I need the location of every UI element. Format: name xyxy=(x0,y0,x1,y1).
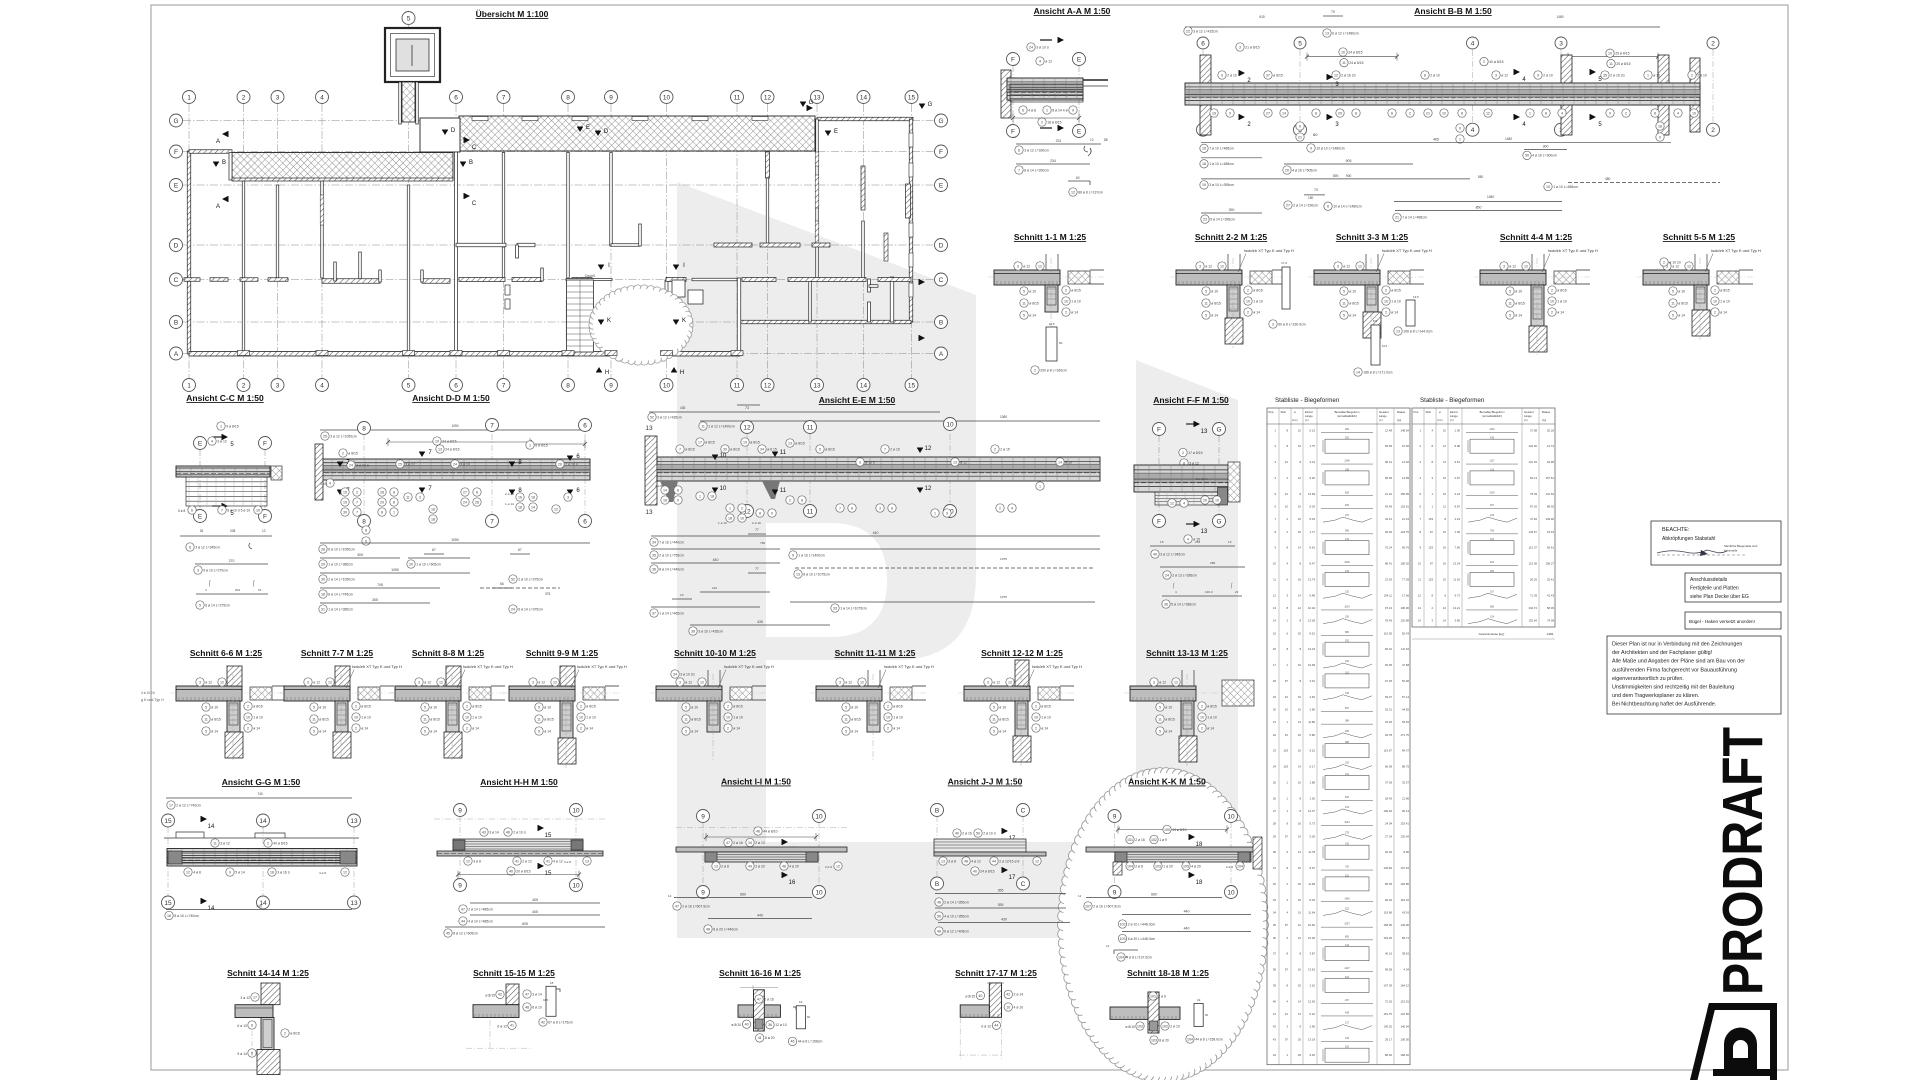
svg-text:34: 34 xyxy=(1273,910,1277,914)
svg-text:67: 67 xyxy=(432,548,436,552)
svg-text:Schnitt 12-12 M 1:25: Schnitt 12-12 M 1:25 xyxy=(981,648,1063,658)
svg-text:4 ø 8: 4 ø 8 xyxy=(193,870,201,874)
svg-text:10.99: 10.99 xyxy=(1308,663,1315,667)
svg-text:9: 9 xyxy=(701,813,705,820)
svg-text:137.43: 137.43 xyxy=(1400,866,1409,870)
svg-text:262: 262 xyxy=(1345,1046,1350,1049)
svg-text:12: 12 xyxy=(220,680,224,684)
svg-text:15: 15 xyxy=(258,588,262,592)
svg-text:97: 97 xyxy=(1285,1037,1289,1041)
svg-text:12: 12 xyxy=(1220,264,1224,268)
svg-text:157.61: 157.61 xyxy=(1545,476,1554,480)
svg-text:231: 231 xyxy=(1056,139,1062,143)
svg-text:1 ø 14 L=1075cm: 1 ø 14 L=1075cm xyxy=(840,606,867,610)
svg-text:14: 14 xyxy=(860,382,868,389)
svg-text:6.48: 6.48 xyxy=(1310,593,1316,597)
svg-text:90.41: 90.41 xyxy=(1385,460,1392,464)
svg-text:104.74: 104.74 xyxy=(1528,606,1537,610)
svg-text:8.47: 8.47 xyxy=(1310,562,1316,566)
svg-text:97: 97 xyxy=(1430,562,1434,566)
svg-text:2 ø 12 L=740cm: 2 ø 12 L=740cm xyxy=(176,803,201,807)
svg-text:47.58: 47.58 xyxy=(1402,663,1409,667)
svg-text:34: 34 xyxy=(748,841,752,845)
svg-text:16: 16 xyxy=(1298,517,1302,521)
svg-text:31: 31 xyxy=(1273,866,1277,870)
svg-text:8.5: 8.5 xyxy=(1373,319,1378,323)
svg-text:14: 14 xyxy=(1282,111,1286,115)
svg-text:88.92: 88.92 xyxy=(1547,504,1554,508)
svg-text:110: 110 xyxy=(712,586,717,590)
svg-text:37: 37 xyxy=(652,611,656,615)
svg-text:13: 13 xyxy=(788,441,792,445)
svg-text:8 ø 10 L=1075cm: 8 ø 10 L=1075cm xyxy=(803,572,830,576)
svg-text:2: 2 xyxy=(1691,73,1693,77)
svg-text:78.39: 78.39 xyxy=(1530,492,1537,496)
svg-text:ø 14: ø 14 xyxy=(1349,313,1356,317)
svg-text:7 ø 14 L=485cm: 7 ø 14 L=485cm xyxy=(1402,216,1427,220)
svg-text:11: 11 xyxy=(807,508,814,515)
svg-text:G: G xyxy=(1216,518,1221,525)
svg-text:11: 11 xyxy=(537,717,541,721)
svg-text:1: 1 xyxy=(1459,137,1461,141)
svg-text:15: 15 xyxy=(908,94,916,101)
svg-text:2 ø 8: 2 ø 8 xyxy=(1135,864,1143,868)
svg-text:2 ø 10: 2 ø 10 xyxy=(1170,1024,1180,1028)
svg-text:683: 683 xyxy=(1345,491,1350,494)
svg-text:BEACHTE:: BEACHTE: xyxy=(1662,527,1690,533)
svg-text:28.45: 28.45 xyxy=(1385,796,1392,800)
svg-text:13.69: 13.69 xyxy=(1308,492,1315,496)
svg-text:12.56: 12.56 xyxy=(1308,999,1315,1003)
svg-text:1 ø 10: 1 ø 10 xyxy=(893,715,903,719)
svg-text:ø 8/15: ø 8/15 xyxy=(348,451,358,455)
svg-text:10: 10 xyxy=(720,486,727,492)
svg-text:3: 3 xyxy=(1495,73,1497,77)
svg-text:F: F xyxy=(1157,518,1161,525)
svg-text:6: 6 xyxy=(1018,148,1020,152)
svg-text:20: 20 xyxy=(1298,983,1302,987)
svg-text:12: 12 xyxy=(764,94,772,101)
svg-text:ø 12: ø 12 xyxy=(685,680,692,684)
svg-text:ø 12: ø 12 xyxy=(1343,264,1350,268)
svg-text:110.59: 110.59 xyxy=(1384,631,1393,635)
svg-text:262: 262 xyxy=(1345,437,1350,440)
svg-text:3 ø 14: 3 ø 14 xyxy=(489,830,499,834)
svg-text:ø 8/10: ø 8/10 xyxy=(1125,1025,1135,1029)
svg-text:Ansicht F-F M 1:50: Ansicht F-F M 1:50 xyxy=(1153,395,1229,405)
svg-text:52: 52 xyxy=(511,577,515,581)
svg-text:ø 8/15: ø 8/15 xyxy=(1165,717,1175,721)
svg-text:153: 153 xyxy=(1428,546,1433,550)
svg-text:C: C xyxy=(472,201,477,207)
svg-text:G: G xyxy=(1216,426,1221,433)
svg-text:4: 4 xyxy=(320,94,324,101)
svg-text:139.92: 139.92 xyxy=(1545,517,1554,521)
svg-text:12: 12 xyxy=(1071,190,1075,194)
svg-text:10: 10 xyxy=(1298,663,1302,667)
svg-text:G: G xyxy=(938,118,943,125)
svg-text:2: 2 xyxy=(284,1031,286,1035)
svg-text:8 ø 10 L=1050cm: 8 ø 10 L=1050cm xyxy=(328,547,355,551)
svg-text:11.99: 11.99 xyxy=(1308,882,1315,886)
svg-text:2: 2 xyxy=(1714,288,1716,292)
svg-text:ø 8 15: ø 8 15 xyxy=(767,447,777,451)
svg-text:5.80: 5.80 xyxy=(1310,733,1316,737)
svg-text:3 ø 10 L=395cm: 3 ø 10 L=395cm xyxy=(1209,183,1234,187)
svg-text:Bei Nichtbeachtung haftet der: Bei Nichtbeachtung haftet der Ausführend… xyxy=(1612,702,1716,708)
svg-text:2: 2 xyxy=(1385,310,1387,314)
svg-text:23: 23 xyxy=(1203,217,1207,221)
svg-text:1080: 1080 xyxy=(1000,415,1007,419)
svg-text:12: 12 xyxy=(1358,264,1362,268)
svg-text:2: 2 xyxy=(1201,726,1203,730)
svg-text:4 ø 20: 4 ø 20 xyxy=(1191,864,1201,868)
svg-text:88.75: 88.75 xyxy=(1402,765,1409,769)
svg-text:32: 32 xyxy=(1273,882,1277,886)
svg-text:48: 48 xyxy=(964,859,968,863)
svg-text:3 ø 8: 3 ø 8 xyxy=(564,860,571,864)
svg-text:14: 14 xyxy=(1298,999,1302,1003)
svg-text:234: 234 xyxy=(1050,159,1056,163)
svg-text:23.30: 23.30 xyxy=(1385,577,1392,581)
svg-text:104: 104 xyxy=(1237,864,1243,868)
svg-text:1: 1 xyxy=(220,424,222,428)
svg-text:11: 11 xyxy=(1022,301,1026,305)
svg-text:10: 10 xyxy=(1034,715,1038,719)
svg-text:163.85: 163.85 xyxy=(1400,882,1409,886)
svg-text:7: 7 xyxy=(490,518,494,525)
svg-text:ø 8/15: ø 8/15 xyxy=(1041,704,1051,708)
svg-text:Länge: Länge xyxy=(1524,414,1532,418)
svg-text:43.91: 43.91 xyxy=(1402,910,1409,914)
svg-text:1 ø 10 L=485cm: 1 ø 10 L=485cm xyxy=(1553,185,1578,189)
svg-text:44 ø 8 L=158cm: 44 ø 8 L=158cm xyxy=(798,1040,823,1044)
svg-text:8 ø 12 L=605cm: 8 ø 12 L=605cm xyxy=(453,931,478,935)
svg-text:1427: 1427 xyxy=(1344,967,1350,970)
svg-text:131.63: 131.63 xyxy=(1545,492,1554,496)
svg-text:102: 102 xyxy=(1162,1024,1168,1028)
svg-text:9: 9 xyxy=(609,94,613,101)
svg-text:34: 34 xyxy=(673,672,677,676)
svg-text:1 ø 10 L=485cm: 1 ø 10 L=485cm xyxy=(1209,162,1234,166)
svg-text:E: E xyxy=(1077,128,1082,135)
svg-text:10: 10 xyxy=(726,715,730,719)
svg-text:8 ø 14 L=440cm: 8 ø 14 L=440cm xyxy=(659,567,684,571)
svg-text:14: 14 xyxy=(208,906,215,912)
svg-text:2 ø 9: 2 ø 9 xyxy=(1158,994,1166,998)
svg-text:102.61: 102.61 xyxy=(1400,504,1409,508)
svg-text:67: 67 xyxy=(518,548,522,552)
svg-text:ø 8/15: ø 8/15 xyxy=(1071,288,1081,292)
svg-text:48: 48 xyxy=(937,900,941,904)
svg-text:17: 17 xyxy=(698,440,702,444)
svg-text:10: 10 xyxy=(1692,111,1696,115)
svg-text:2 ø 10: 2 ø 10 xyxy=(1430,73,1440,77)
svg-text:24 ø 8/15: 24 ø 8/15 xyxy=(445,447,459,451)
svg-text:10: 10 xyxy=(1215,498,1219,502)
svg-text:12: 12 xyxy=(186,870,190,874)
svg-text:5: 5 xyxy=(845,705,847,709)
svg-text:Schnitt 7-7 M 1:25: Schnitt 7-7 M 1:25 xyxy=(301,648,374,658)
svg-text:12: 12 xyxy=(439,680,443,684)
svg-text:[kg]: [kg] xyxy=(1542,419,1546,422)
svg-text:6 ø 14 L=275cm: 6 ø 14 L=275cm xyxy=(205,603,230,607)
svg-text:E: E xyxy=(834,129,838,135)
svg-text:12: 12 xyxy=(764,382,772,389)
svg-text:9: 9 xyxy=(1659,135,1661,139)
svg-text:2: 2 xyxy=(466,704,468,708)
svg-text:Anschlussdetails: Anschlussdetails xyxy=(1690,577,1728,583)
svg-text:Länge: Länge xyxy=(1379,414,1387,418)
svg-text:40: 40 xyxy=(978,994,982,998)
svg-text:208: 208 xyxy=(230,529,236,533)
svg-text:8 ø 10 ü 5 ø 10: 8 ø 10 ü 5 ø 10 xyxy=(227,508,250,512)
svg-text:3 ø 14: 3 ø 14 xyxy=(532,992,542,996)
svg-text:Isokörb XT Typ K und Typ H: Isokörb XT Typ K und Typ H xyxy=(1711,248,1761,253)
svg-text:5: 5 xyxy=(685,729,687,733)
svg-text:107.39: 107.39 xyxy=(1383,983,1392,987)
svg-text:3 ø 10 2ü: 3 ø 10 2ü xyxy=(680,672,694,676)
svg-text:97: 97 xyxy=(1285,968,1289,972)
svg-text:36: 36 xyxy=(768,1023,772,1027)
svg-text:Isokörb XT Typ K und Typ H: Isokörb XT Typ K und Typ H xyxy=(724,664,774,669)
svg-text:33: 33 xyxy=(833,606,837,610)
svg-text:ø 10: ø 10 xyxy=(1029,289,1036,293)
svg-text:136.3: 136.3 xyxy=(1205,590,1213,594)
svg-text:ø 8/15: ø 8/15 xyxy=(361,704,371,708)
svg-text:13.19: 13.19 xyxy=(1308,1037,1315,1041)
svg-text:25.41: 25.41 xyxy=(1547,577,1554,581)
svg-text:2 ø 8: 2 ø 8 xyxy=(721,864,729,868)
svg-text:15.15: 15.15 xyxy=(1547,530,1554,534)
svg-text:5: 5 xyxy=(1159,729,1161,733)
svg-text:14: 14 xyxy=(1298,1012,1302,1016)
svg-text:ø 8/15: ø 8/15 xyxy=(211,717,221,721)
svg-text:18: 18 xyxy=(1202,162,1206,166)
svg-text:123.75: 123.75 xyxy=(1400,530,1409,534)
svg-text:355: 355 xyxy=(998,903,1004,907)
svg-text:9: 9 xyxy=(1113,889,1117,896)
svg-text:5: 5 xyxy=(993,729,995,733)
svg-text:A: A xyxy=(216,204,220,210)
svg-text:8: 8 xyxy=(1545,111,1547,115)
svg-text:18: 18 xyxy=(531,495,535,499)
svg-text:430: 430 xyxy=(1001,918,1007,922)
svg-text:4 ø 20: 4 ø 20 xyxy=(789,864,799,868)
svg-text:8: 8 xyxy=(362,425,366,432)
svg-text:2: 2 xyxy=(1065,288,1067,292)
svg-text:9: 9 xyxy=(1221,73,1223,77)
svg-text:13.74: 13.74 xyxy=(1308,577,1315,581)
svg-text:44: 44 xyxy=(992,859,996,863)
svg-text:20: 20 xyxy=(1298,882,1302,886)
svg-text:95.36: 95.36 xyxy=(1385,476,1392,480)
svg-text:⌠: ⌠ xyxy=(1172,582,1175,589)
svg-text:10.60: 10.60 xyxy=(1402,444,1409,448)
svg-text:1480: 1480 xyxy=(1487,195,1494,199)
svg-text:100.18: 100.18 xyxy=(1383,809,1392,813)
svg-text:18.5: 18.5 xyxy=(1049,322,1055,326)
svg-text:3.85: 3.85 xyxy=(1455,619,1461,623)
svg-text:153: 153 xyxy=(1428,517,1433,521)
svg-text:4 ø 8: 4 ø 8 xyxy=(655,484,662,488)
svg-text:Ansicht I-I M 1:50: Ansicht I-I M 1:50 xyxy=(721,777,791,787)
svg-text:Schnitt 1-1 M 1:25: Schnitt 1-1 M 1:25 xyxy=(1014,232,1087,242)
svg-text:Schnitt 18-18 M 1:25: Schnitt 18-18 M 1:25 xyxy=(1127,968,1209,978)
svg-text:4 ø 10 L=485cm: 4 ø 10 L=485cm xyxy=(468,919,493,923)
svg-text:17: 17 xyxy=(253,995,257,999)
svg-text:1.77: 1.77 xyxy=(1310,530,1316,534)
svg-text:25.05: 25.05 xyxy=(1385,663,1392,667)
svg-text:154: 154 xyxy=(1345,806,1350,809)
svg-text:8: 8 xyxy=(1654,111,1656,115)
svg-text:8 ø 14 L=260cm: 8 ø 14 L=260cm xyxy=(1024,168,1049,172)
svg-text:11.80: 11.80 xyxy=(1308,720,1315,724)
svg-text:44 ø 8/10: 44 ø 8/10 xyxy=(1172,828,1186,832)
svg-text:16: 16 xyxy=(1298,749,1302,753)
svg-text:608: 608 xyxy=(1490,605,1495,608)
svg-text:10: 10 xyxy=(1285,460,1289,464)
svg-text:5: 5 xyxy=(1672,313,1674,317)
svg-text:10 ø 10 L=1480cm: 10 ø 10 L=1480cm xyxy=(1316,146,1345,150)
svg-text:2 ø 16: 2 ø 16 xyxy=(1135,838,1145,842)
svg-text:167: 167 xyxy=(1490,590,1495,593)
svg-text:1044: 1044 xyxy=(1344,821,1350,824)
svg-text:5: 5 xyxy=(685,705,687,709)
svg-text:3.24: 3.24 xyxy=(1455,492,1461,496)
svg-text:10: 10 xyxy=(1285,695,1289,699)
svg-text:2 ø 16: 2 ø 16 xyxy=(962,831,972,835)
svg-text:5: 5 xyxy=(1023,289,1025,293)
svg-text:28: 28 xyxy=(1273,822,1277,826)
svg-text:10: 10 xyxy=(1298,504,1302,508)
svg-text:Bügel - Haken versetzt anorden: Bügel - Haken versetzt anorden! xyxy=(1689,619,1755,624)
svg-text:ø 8/15: ø 8/15 xyxy=(1678,301,1688,305)
svg-text:Schnitt 3-3 M 1:25: Schnitt 3-3 M 1:25 xyxy=(1336,232,1409,242)
svg-text:214: 214 xyxy=(1490,616,1495,619)
svg-text:3 ø 12 L=435cm: 3 ø 12 L=435cm xyxy=(657,415,682,419)
svg-text:21: 21 xyxy=(1395,216,1399,220)
svg-text:1 ø 16 L=1400cm: 1 ø 16 L=1400cm xyxy=(798,553,825,557)
svg-text:19: 19 xyxy=(1197,998,1201,1002)
svg-text:ø 14: ø 14 xyxy=(1253,310,1260,314)
svg-text:16: 16 xyxy=(167,914,171,918)
svg-text:ø 14: ø 14 xyxy=(544,729,551,733)
svg-text:2: 2 xyxy=(1483,60,1485,64)
svg-text:12: 12 xyxy=(1298,923,1302,927)
svg-text:440: 440 xyxy=(1184,910,1190,914)
svg-text:460: 460 xyxy=(1345,504,1350,507)
svg-text:2: 2 xyxy=(789,498,791,502)
svg-text:760: 760 xyxy=(760,541,765,545)
svg-text:3 ø 10 2ü: 3 ø 10 2ü xyxy=(141,691,155,695)
svg-text:1: 1 xyxy=(187,382,191,389)
svg-text:84.37: 84.37 xyxy=(1402,749,1409,753)
svg-text:4: 4 xyxy=(320,382,324,389)
svg-text:404: 404 xyxy=(1345,976,1350,979)
svg-text:24: 24 xyxy=(1029,45,1033,49)
svg-text:ø 12: ø 12 xyxy=(313,680,320,684)
svg-text:2 ø 14: 2 ø 14 xyxy=(505,492,514,496)
svg-text:2: 2 xyxy=(247,726,249,730)
svg-text:10: 10 xyxy=(572,807,580,814)
svg-text:110: 110 xyxy=(1345,671,1349,674)
svg-text:13: 13 xyxy=(1325,31,1329,35)
svg-text:19: 19 xyxy=(799,1000,803,1004)
svg-text:3: 3 xyxy=(276,382,280,389)
svg-text:68.45: 68.45 xyxy=(1547,606,1554,610)
svg-text:35: 35 xyxy=(1603,73,1607,77)
svg-text:153: 153 xyxy=(1428,577,1433,581)
svg-text:ø 14: ø 14 xyxy=(211,729,218,733)
svg-text:F: F xyxy=(939,149,943,156)
svg-text:17.0: 17.0 xyxy=(1281,261,1287,265)
svg-text:B: B xyxy=(939,319,943,326)
svg-text:127: 127 xyxy=(1345,1022,1350,1025)
svg-text:2 ø 9: 2 ø 9 xyxy=(825,865,832,869)
svg-text:36.92: 36.92 xyxy=(1385,530,1392,534)
svg-text:86 ø 8 L=137cm: 86 ø 8 L=137cm xyxy=(1078,190,1103,194)
svg-text:Stabliste - Biegeformen: Stabliste - Biegeformen xyxy=(1275,397,1340,404)
svg-text:1 ø 10: 1 ø 10 xyxy=(733,715,743,719)
svg-text:10 ø 14 L=1480cm: 10 ø 14 L=1480cm xyxy=(1333,205,1362,209)
svg-text:Ansicht E-E M 1:50: Ansicht E-E M 1:50 xyxy=(819,395,896,405)
svg-text:279: 279 xyxy=(1345,831,1350,834)
svg-text:Gesamtmasse [kg] :: Gesamtmasse [kg] : xyxy=(1479,632,1506,636)
svg-text:8: 8 xyxy=(393,500,395,504)
svg-text:11: 11 xyxy=(406,495,410,499)
svg-text:41: 41 xyxy=(510,1024,514,1028)
svg-text:Pos.: Pos. xyxy=(1269,410,1275,414)
svg-text:38: 38 xyxy=(691,629,695,633)
svg-text:145.25: 145.25 xyxy=(1383,1025,1392,1029)
svg-text:ø 14: ø 14 xyxy=(1391,310,1398,314)
svg-text:119.67: 119.67 xyxy=(1384,749,1393,753)
svg-text:E: E xyxy=(198,440,203,447)
svg-text:5: 5 xyxy=(1343,289,1345,293)
svg-text:14: 14 xyxy=(1298,593,1302,597)
svg-text:16: 16 xyxy=(1298,444,1302,448)
svg-text:19: 19 xyxy=(1202,183,1206,187)
svg-text:418: 418 xyxy=(1490,437,1495,440)
svg-text:14: 14 xyxy=(259,818,267,825)
svg-text:3 ø 12 L=1050cm: 3 ø 12 L=1050cm xyxy=(330,434,357,438)
svg-text:35: 35 xyxy=(1273,923,1277,927)
svg-text:10: 10 xyxy=(1713,299,1717,303)
svg-text:9: 9 xyxy=(458,807,462,814)
svg-text:ø 14: ø 14 xyxy=(1211,313,1218,317)
svg-text:270: 270 xyxy=(229,559,235,563)
svg-text:6: 6 xyxy=(1391,111,1393,115)
svg-text:10: 10 xyxy=(1246,299,1250,303)
svg-text:Schnitt 6-6 M 1:25: Schnitt 6-6 M 1:25 xyxy=(190,648,263,658)
svg-text:18: 18 xyxy=(431,507,435,511)
svg-text:86.41: 86.41 xyxy=(1385,562,1392,566)
svg-text:2 ø 10: 2 ø 10 xyxy=(1227,73,1237,77)
svg-text:144: 144 xyxy=(1345,944,1350,947)
svg-text:615: 615 xyxy=(1259,15,1265,19)
svg-text:5.73: 5.73 xyxy=(1310,822,1316,826)
svg-text:3: 3 xyxy=(1337,264,1339,268)
svg-text:D: D xyxy=(604,129,609,135)
svg-text:745: 745 xyxy=(377,583,383,587)
svg-text:1345: 1345 xyxy=(1344,897,1350,900)
svg-text:ø 14: ø 14 xyxy=(1041,726,1048,730)
svg-text:1 ø 12 L=1400cm: 1 ø 12 L=1400cm xyxy=(708,424,735,428)
svg-text:1 ø 10: 1 ø 10 xyxy=(1071,299,1081,303)
svg-text:2: 2 xyxy=(1247,310,1249,314)
svg-text:97: 97 xyxy=(1285,679,1289,683)
